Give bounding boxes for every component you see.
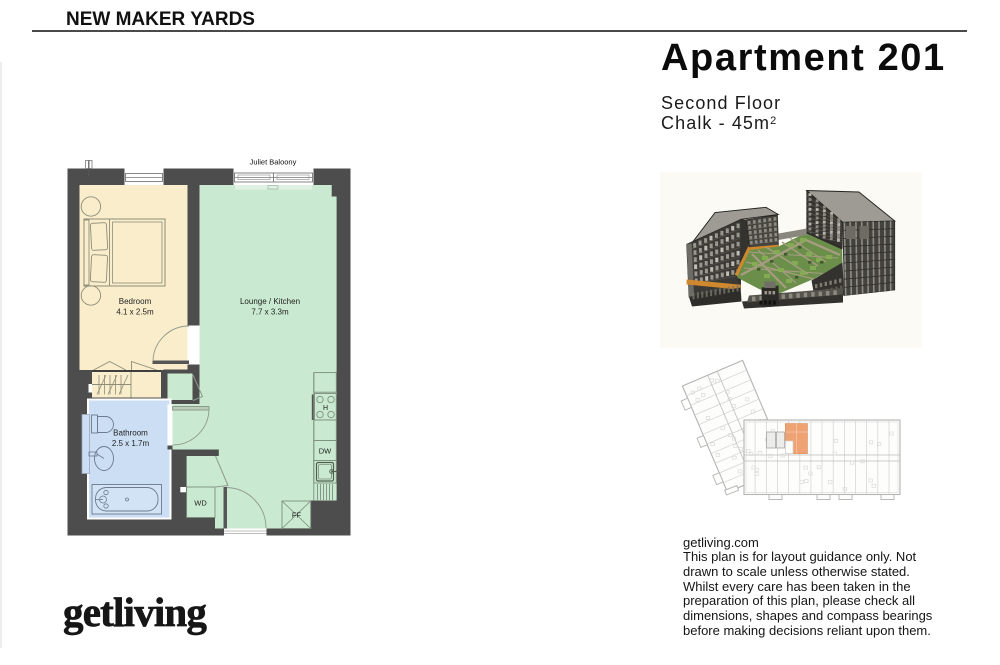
svg-text:H: H (323, 405, 328, 412)
svg-text:Bathroom: Bathroom (113, 429, 148, 438)
svg-text:WD: WD (194, 499, 207, 508)
svg-text:FF: FF (292, 511, 302, 520)
svg-text:7.7 x 3.3m: 7.7 x 3.3m (251, 308, 289, 317)
svg-text:4.1 x 2.5m: 4.1 x 2.5m (116, 308, 154, 317)
svg-text:DW: DW (319, 447, 332, 456)
svg-text:Lounge / Kitchen: Lounge / Kitchen (240, 297, 300, 306)
svg-text:Bedroom: Bedroom (119, 297, 152, 306)
svg-text:Juliet Baloony: Juliet Baloony (250, 158, 297, 167)
svg-text:2.5 x 1.7m: 2.5 x 1.7m (112, 439, 150, 448)
